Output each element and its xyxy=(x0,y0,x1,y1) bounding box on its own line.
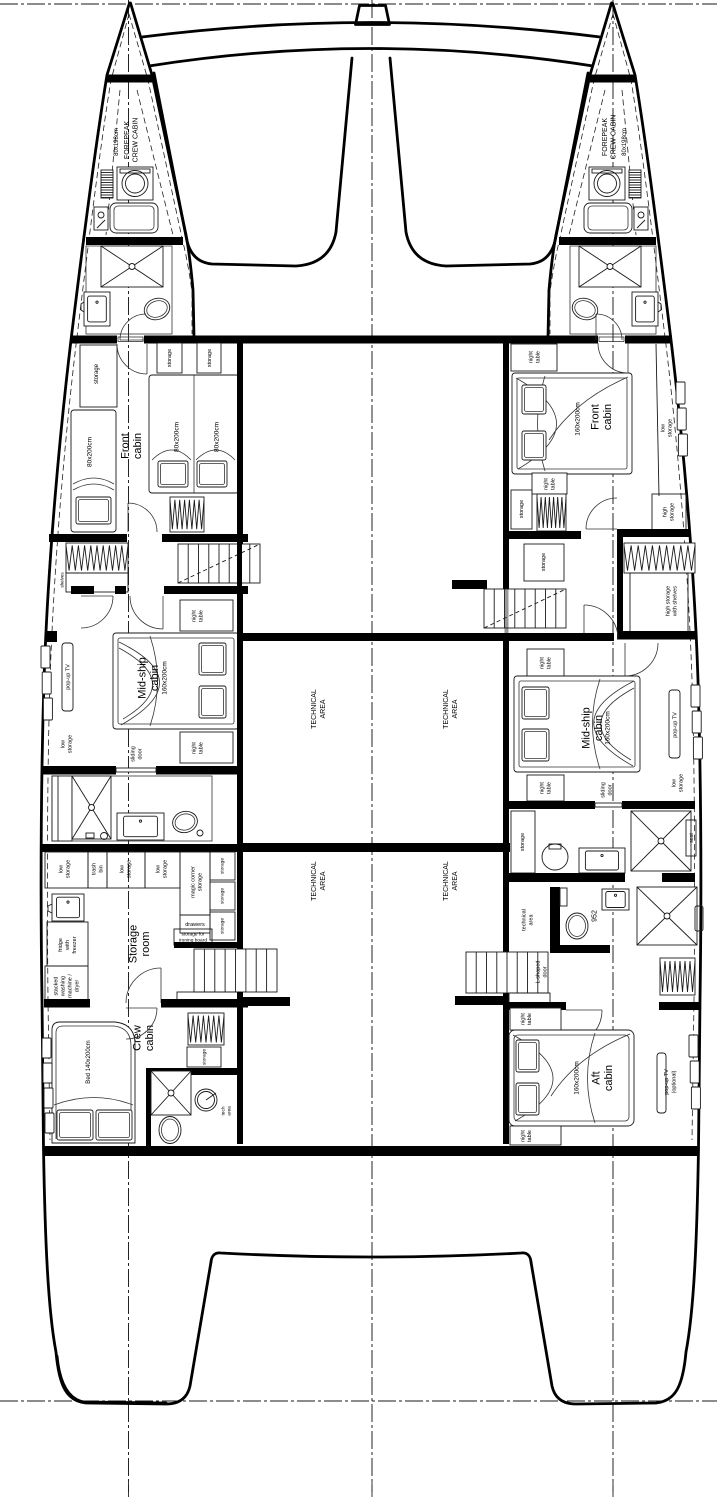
svg-text:80x198cm: 80x198cm xyxy=(622,128,628,156)
svg-text:nighttable: nighttable xyxy=(528,351,541,363)
svg-text:80x200cm: 80x200cm xyxy=(213,422,220,452)
svg-text:storage: storage xyxy=(220,918,226,934)
svg-text:FOREPEAKCREW CABIN: FOREPEAKCREW CABIN xyxy=(602,115,618,160)
svg-text:Bed 140x200cm: Bed 140x200cm xyxy=(86,1040,92,1083)
svg-text:FOREPEAKCREW CABIN: FOREPEAKCREW CABIN xyxy=(124,118,140,163)
svg-text:nighttable: nighttable xyxy=(543,478,556,490)
svg-text:nighttable: nighttable xyxy=(191,610,204,622)
svg-text:80x200cm: 80x200cm xyxy=(173,422,180,452)
svg-text:slidingdoor: slidingdoor xyxy=(130,746,143,762)
svg-text:storage: storage xyxy=(202,1049,208,1065)
svg-text:storage for: storage for xyxy=(182,932,205,938)
svg-text:seat: seat xyxy=(689,833,695,843)
svg-text:storage: storage xyxy=(167,349,173,367)
svg-text:high storagewith shelves: high storagewith shelves xyxy=(665,586,678,617)
svg-text:160x200cm: 160x200cm xyxy=(161,661,168,695)
svg-text:160x200cm: 160x200cm xyxy=(604,711,611,745)
svg-text:storage: storage xyxy=(94,363,100,384)
svg-text:nighttable: nighttable xyxy=(521,1130,534,1142)
svg-text:Frontcabin: Frontcabin xyxy=(590,404,615,430)
svg-text:shelves: shelves xyxy=(60,572,65,588)
svg-text:storage: storage xyxy=(520,833,526,851)
svg-text:nighttable: nighttable xyxy=(191,742,204,754)
svg-text:pop-up TV: pop-up TV xyxy=(672,712,678,738)
svg-text:nighttable: nighttable xyxy=(521,1013,534,1025)
svg-text:nighttable: nighttable xyxy=(539,782,552,794)
svg-text:storage: storage xyxy=(519,500,525,518)
svg-text:160x200cm: 160x200cm xyxy=(574,402,581,436)
svg-text:80x198cm: 80x198cm xyxy=(114,128,120,156)
svg-text:pop-up TV(optional): pop-up TV(optional) xyxy=(664,1069,678,1095)
svg-text:952: 952 xyxy=(591,910,598,922)
svg-text:Frontcabin: Frontcabin xyxy=(120,433,145,459)
svg-text:storage: storage xyxy=(541,553,547,571)
svg-text:slidingdoor: slidingdoor xyxy=(600,782,613,798)
svg-text:storage: storage xyxy=(220,858,226,874)
svg-text:storage: storage xyxy=(220,888,226,904)
svg-text:storage: storage xyxy=(207,349,213,367)
svg-text:160x200cm: 160x200cm xyxy=(573,1061,580,1095)
svg-text:nighttable: nighttable xyxy=(539,657,552,669)
svg-text:pop-up TV: pop-up TV xyxy=(65,664,71,690)
svg-text:80x200cm: 80x200cm xyxy=(86,437,93,467)
svg-text:drawers: drawers xyxy=(185,922,205,928)
svg-text:techarea: techarea xyxy=(221,1106,233,1116)
